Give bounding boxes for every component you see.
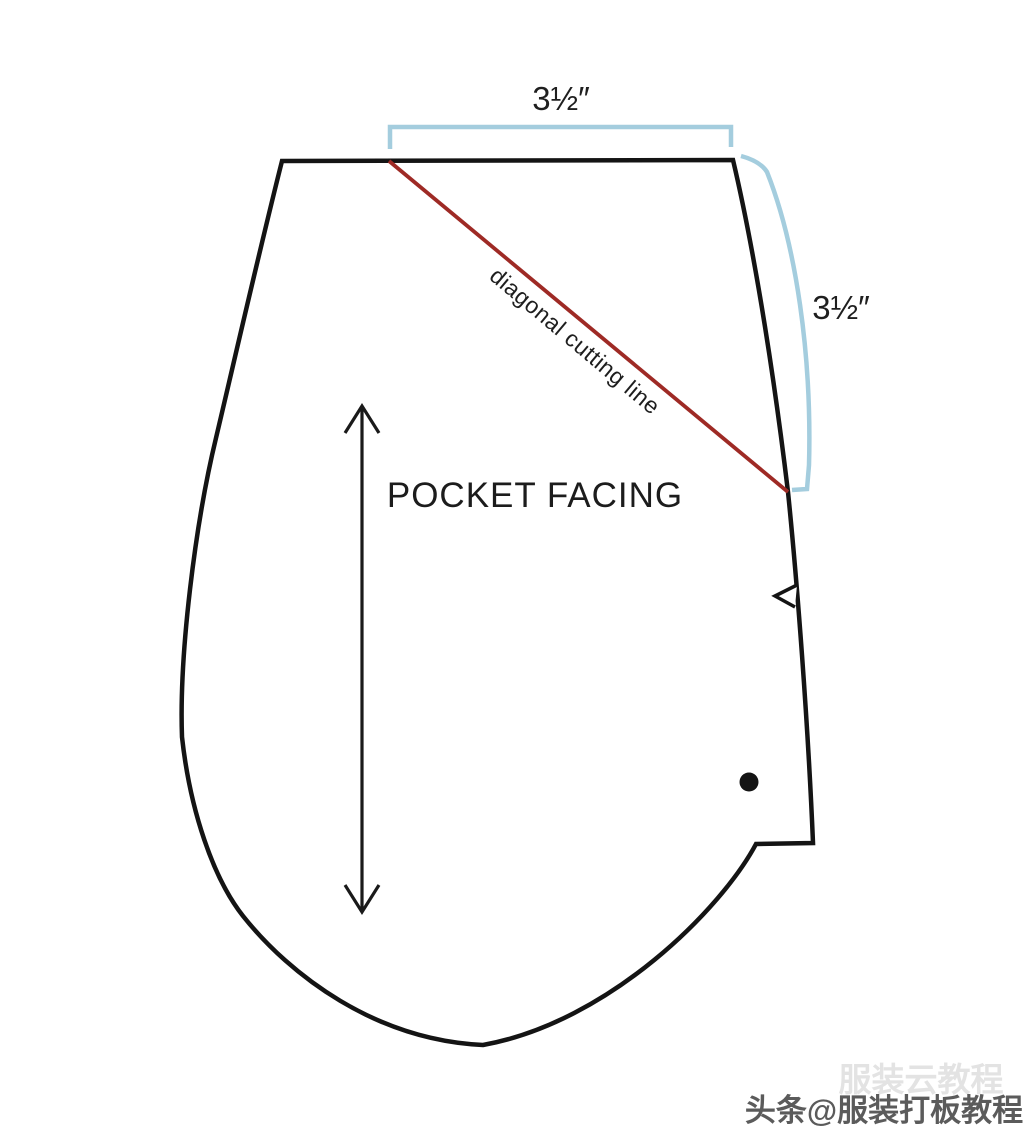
- top-dimension-bracket: [390, 127, 731, 149]
- piece-name-label: POCKET FACING: [387, 476, 683, 515]
- watermark-main-text: 头条@服装打板教程: [745, 1093, 1023, 1128]
- side-dimension-label: 3½″: [812, 289, 870, 326]
- watermark: 服装云教程 头条@服装打板教程 头条@服装打板教程: [745, 1061, 1024, 1130]
- pattern-sheet: 3½″ 3½″ diagonal cutting line POCKET FAC…: [0, 0, 1024, 1144]
- pocket-facing-outline: [182, 160, 813, 1045]
- drill-point-dot: [740, 773, 759, 792]
- pocket-facing-diagram: 3½″ 3½″ diagonal cutting line POCKET FAC…: [0, 0, 1024, 1144]
- top-dimension-label: 3½″: [532, 80, 590, 117]
